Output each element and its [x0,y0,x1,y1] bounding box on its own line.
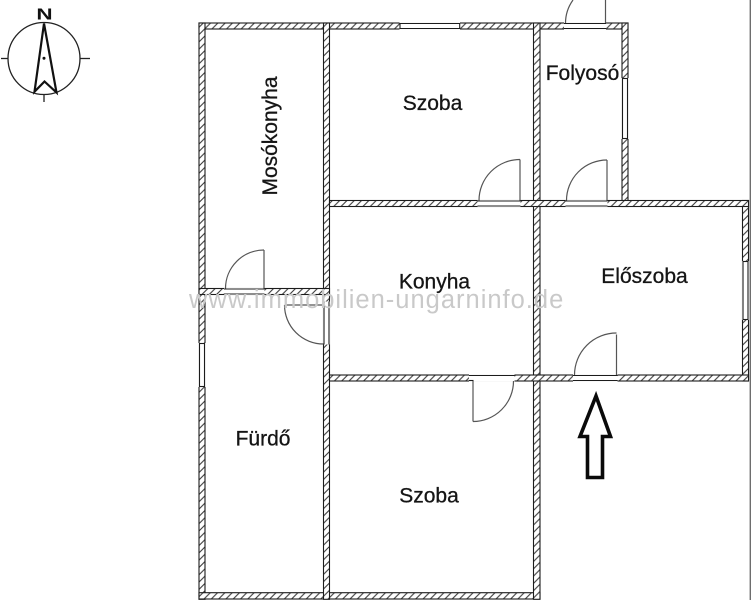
svg-text:Előszoba: Előszoba [601,265,688,288]
svg-text:Szoba: Szoba [403,92,463,115]
svg-text:Mosókonyha: Mosókonyha [259,76,282,195]
svg-text:N: N [36,7,52,24]
svg-text:www.immobilien-ungarninfo.de: www.immobilien-ungarninfo.de [188,286,564,314]
svg-text:Folyosó: Folyosó [546,62,620,85]
svg-text:Szoba: Szoba [399,485,459,508]
svg-text:Fürdő: Fürdő [236,428,291,451]
